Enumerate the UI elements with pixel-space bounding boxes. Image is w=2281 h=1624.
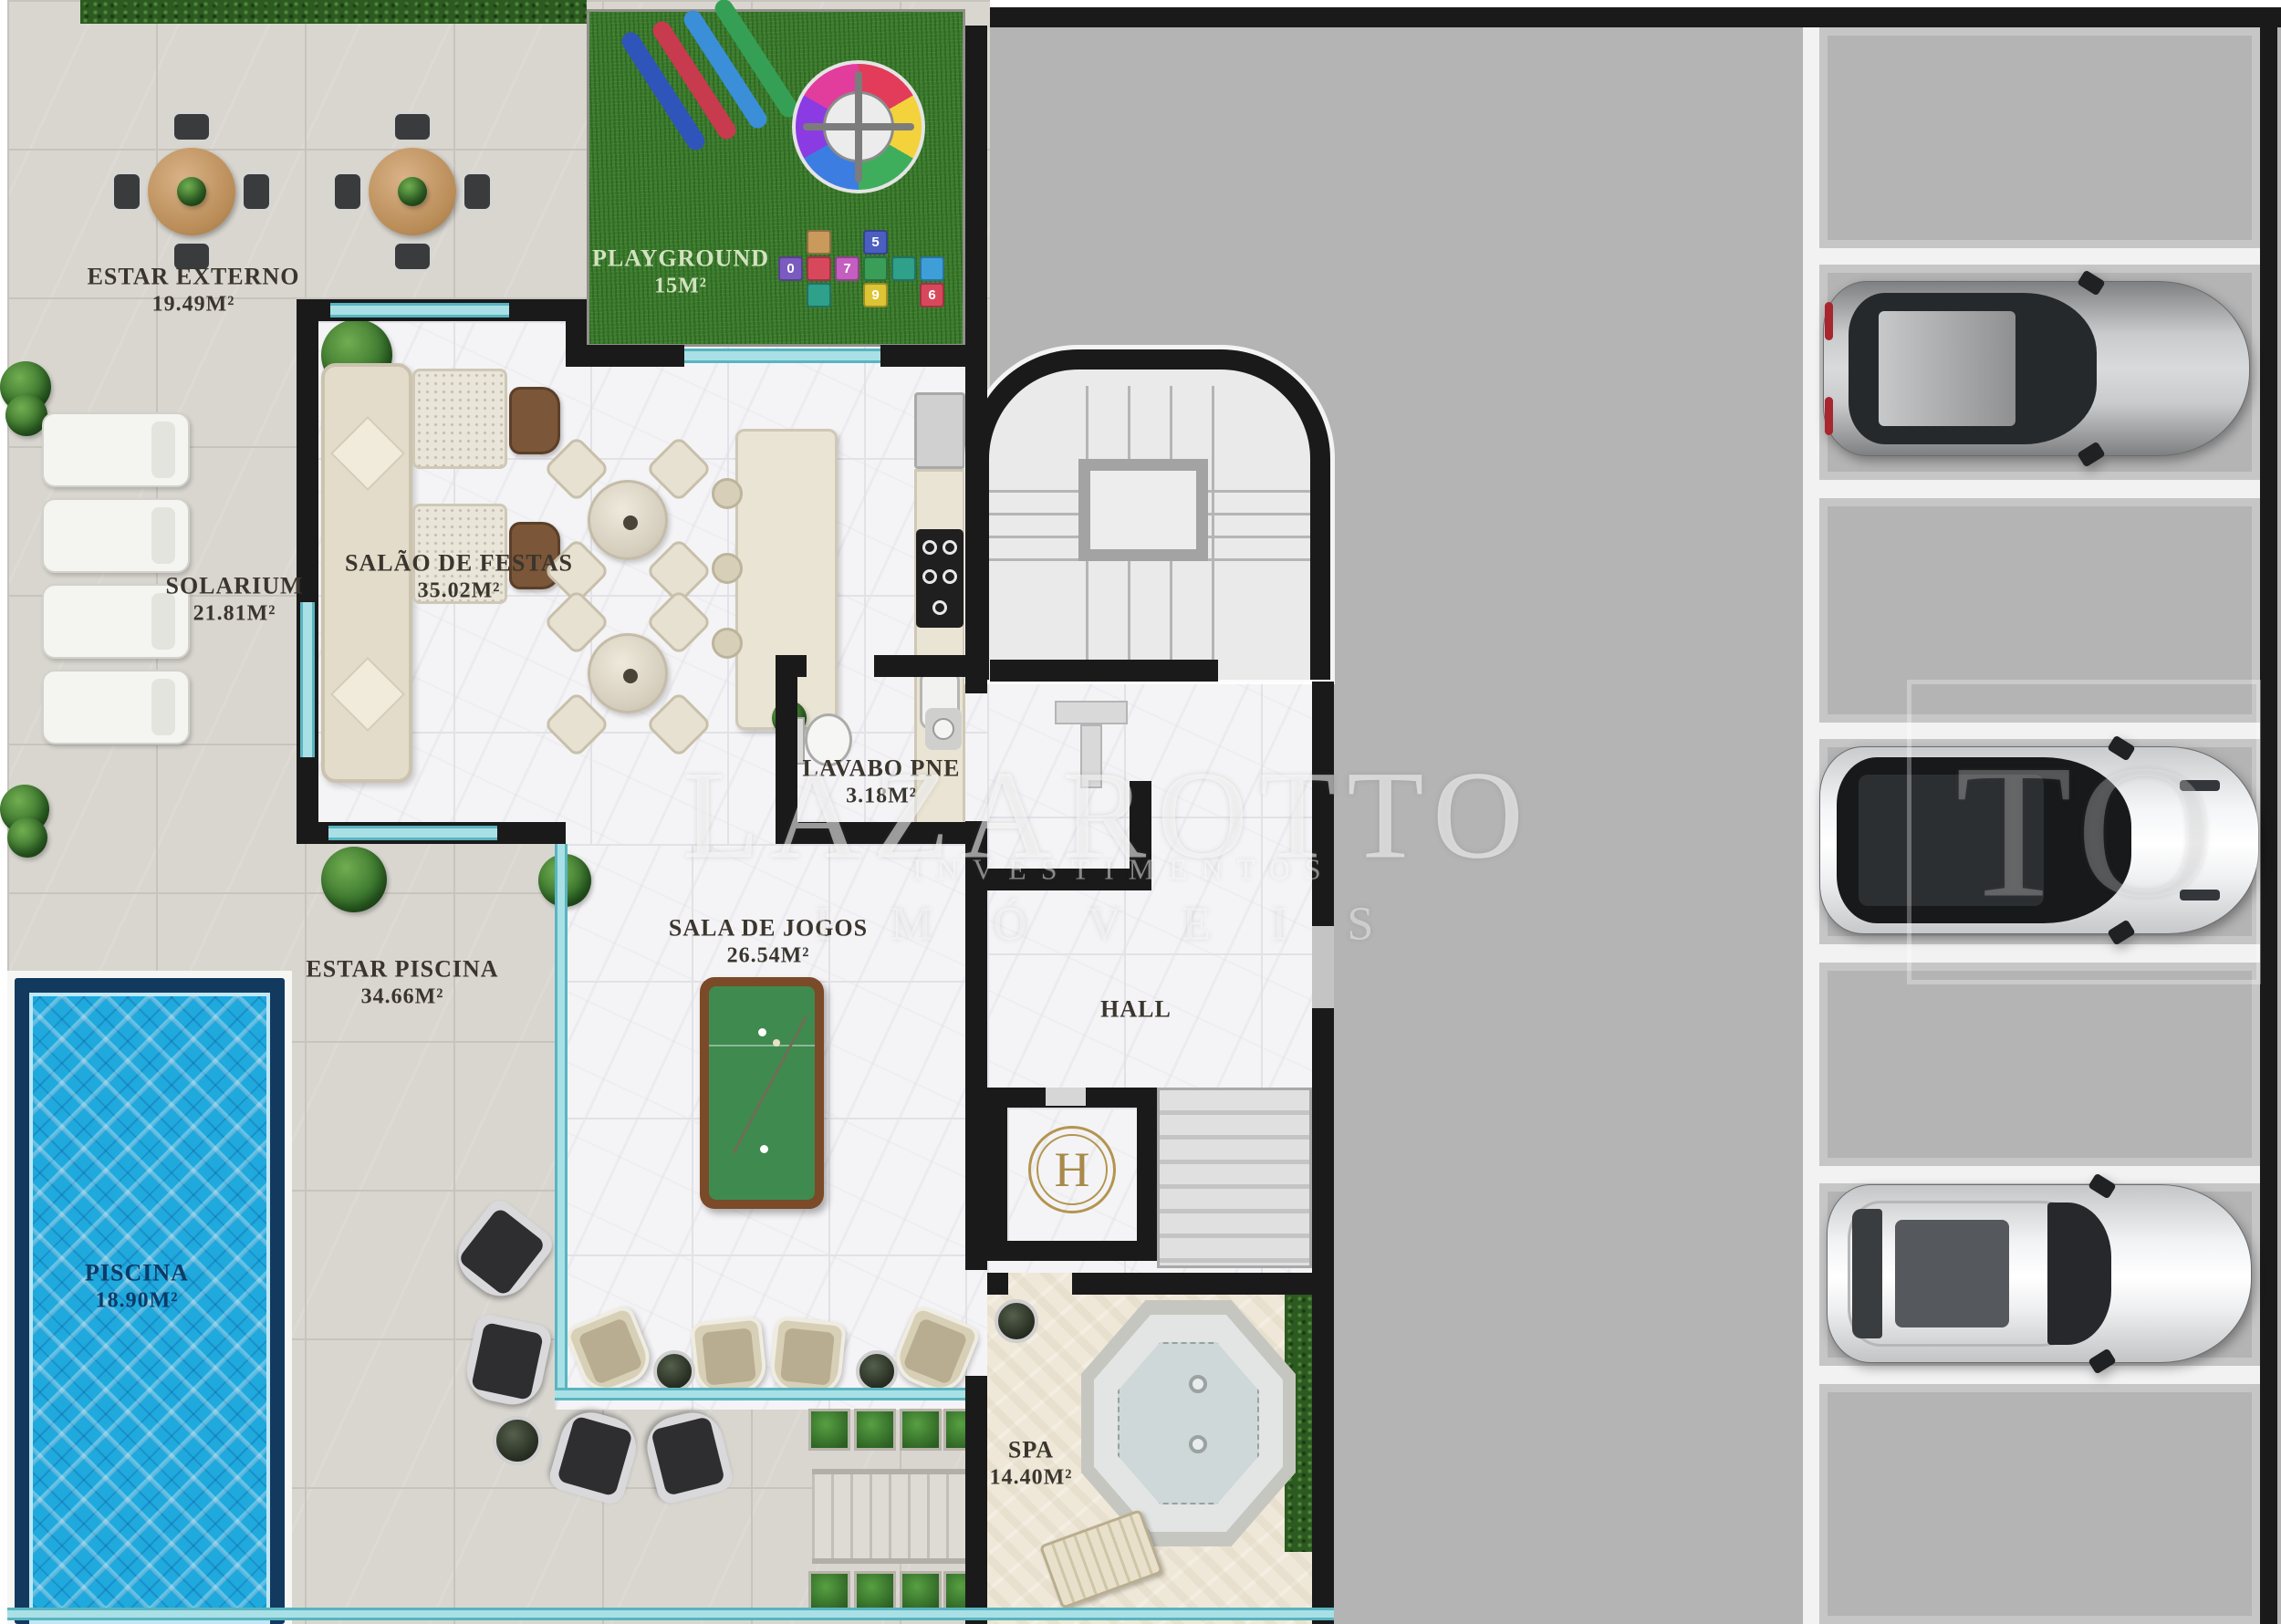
hopscotch-tile — [920, 256, 944, 281]
fridge — [914, 392, 965, 469]
hall-column — [1055, 701, 1128, 724]
bar-stool — [712, 478, 743, 509]
spa-jet — [1189, 1435, 1207, 1453]
armchair — [768, 1316, 847, 1398]
room-label-hall: HALL — [1100, 996, 1172, 1025]
room-name: SALÃO DE FESTAS — [345, 550, 573, 578]
round-table — [588, 480, 668, 560]
hall-column — [1080, 724, 1102, 788]
sun-lounger — [42, 498, 190, 573]
landing-platform — [1078, 459, 1208, 561]
hopscotch-tile — [807, 230, 831, 255]
chair — [172, 111, 212, 142]
wall-segment — [1312, 682, 1334, 926]
chair — [111, 172, 142, 212]
spinner-bar — [855, 71, 862, 182]
shrub — [900, 1409, 942, 1451]
ball — [760, 1145, 768, 1153]
side-table-round — [856, 1350, 898, 1392]
burner — [922, 540, 937, 555]
armchair-brown — [509, 387, 560, 454]
lane-line — [1803, 27, 1819, 1624]
room-name: LAVABO PNE — [802, 755, 960, 784]
hopscotch-tile — [807, 256, 831, 281]
bush — [321, 847, 387, 912]
hopscotch-tile: 7 — [835, 256, 859, 281]
ball — [773, 1039, 780, 1046]
hopscotch-tile: 9 — [863, 283, 888, 307]
room-name: ESTAR PISCINA — [306, 956, 498, 984]
wall-segment — [965, 1376, 987, 1624]
room-area: 35.02M² — [345, 578, 573, 603]
hopscotch-tile: 6 — [920, 283, 944, 307]
room-label-spa: SPA 14.40M² — [990, 1437, 1073, 1491]
bush — [7, 817, 47, 858]
room-label-salao-de-festas: SALÃO DE FESTAS 35.02M² — [345, 550, 573, 604]
burner — [922, 569, 937, 584]
chair — [392, 241, 432, 272]
car-windshield — [2047, 1202, 2111, 1346]
sink — [925, 708, 962, 750]
room-label-lavabo-pne: LAVABO PNE 3.18M² — [802, 755, 960, 809]
window-glass — [684, 349, 880, 363]
floor-plan: 5 0 7 9 6 — [0, 0, 2281, 1624]
hopscotch-tile: 5 — [863, 230, 888, 255]
wall-segment — [1312, 1273, 1334, 1624]
room-area: 19.49M² — [88, 291, 300, 317]
burner — [943, 569, 957, 584]
watermark-logo-box: TO — [1907, 680, 2261, 984]
ball — [758, 1028, 766, 1036]
spa-planter — [995, 1299, 1038, 1343]
room-name: ESTAR EXTERNO — [88, 264, 300, 292]
chair — [241, 172, 272, 212]
centerpiece — [623, 669, 638, 683]
wall-segment — [776, 655, 797, 844]
centerpiece — [623, 515, 638, 530]
pool-felt — [709, 986, 815, 1200]
wall-segment — [1072, 1273, 1334, 1295]
room-area: 18.90M² — [85, 1287, 189, 1313]
spa-tub — [1081, 1300, 1296, 1546]
spot-divider — [1819, 480, 2260, 498]
sofa-pillow — [330, 416, 405, 491]
car-taillight — [1825, 302, 1833, 340]
burner — [943, 540, 957, 555]
room-area: 3.18M² — [802, 783, 960, 808]
garage-door-opening — [1312, 926, 1334, 1008]
cue-stick — [733, 1015, 807, 1154]
sofa-pillow — [330, 657, 405, 732]
wall-segment — [965, 26, 987, 367]
wall-segment — [776, 822, 965, 844]
chair — [392, 111, 432, 142]
burner — [932, 600, 947, 615]
elevator-badge: H — [1028, 1126, 1116, 1213]
hopscotch-tile — [891, 256, 916, 281]
wall-segment — [1312, 1008, 1334, 1273]
car-sunroof — [1879, 311, 2015, 427]
entry-portico — [969, 349, 1330, 680]
spot-divider — [1819, 248, 2260, 265]
parking-spot — [1819, 963, 2260, 1166]
wall-segment — [1130, 781, 1151, 890]
room-label-estar-externo: ESTAR EXTERNO 19.49M² — [88, 264, 300, 318]
car-silver-sedan — [1823, 281, 2250, 456]
spot-divider — [1819, 1166, 2260, 1183]
room-label-sala-de-jogos: SALA DE JOGOS 26.54M² — [669, 915, 868, 969]
bar-stool — [712, 553, 743, 584]
shrub — [854, 1409, 896, 1451]
room-name: SALA DE JOGOS — [669, 915, 868, 943]
room-label-solarium: SOLARIUM 21.81M² — [165, 573, 303, 627]
wall-segment — [874, 655, 965, 677]
glass-wall — [555, 1388, 987, 1400]
side-table — [412, 369, 507, 469]
room-area: 14.40M² — [990, 1464, 1073, 1490]
parking-spot — [1819, 27, 2260, 248]
room-label-estar-piscina: ESTAR PISCINA 34.66M² — [306, 956, 498, 1010]
room-name: SPA — [990, 1437, 1073, 1465]
window-glass — [328, 826, 497, 840]
bar-stool — [712, 628, 743, 659]
sun-lounger — [42, 670, 190, 744]
shrub — [808, 1409, 850, 1451]
chair — [462, 172, 493, 212]
wall-segment — [987, 869, 1151, 890]
garage-border-top — [990, 7, 2281, 27]
car-white-suv — [1827, 1184, 2252, 1363]
chair — [332, 172, 363, 212]
wall-segment — [566, 299, 587, 367]
basin — [932, 718, 954, 740]
armchair — [690, 1316, 768, 1398]
wall-segment — [990, 660, 1218, 682]
window-glass — [330, 303, 509, 318]
baulk-line — [709, 1045, 815, 1046]
glass-wall — [555, 844, 568, 1399]
glass-rail-bottom — [7, 1608, 1334, 1620]
spinner-wheel — [792, 60, 925, 193]
sun-lounger — [42, 412, 190, 487]
round-table — [588, 633, 668, 713]
room-name: SOLARIUM — [165, 573, 303, 601]
wall-segment — [297, 299, 318, 844]
elevator-monogram: H — [1031, 1141, 1113, 1198]
room-area: 21.81M² — [165, 600, 303, 626]
car-taillight — [1825, 397, 1833, 435]
room-name: HALL — [1100, 996, 1172, 1025]
elevator-shaft: H — [987, 1088, 1157, 1261]
side-table-round — [653, 1350, 695, 1392]
room-label-playground: PLAYGROUND 15M² — [592, 245, 769, 299]
pool-table — [700, 977, 824, 1209]
room-area: 15M² — [592, 273, 769, 298]
stove — [916, 529, 963, 628]
wall-segment — [587, 345, 684, 367]
room-label-piscina: PISCINA 18.90M² — [85, 1260, 189, 1314]
table-plant — [398, 177, 427, 206]
spa-jet — [1189, 1375, 1207, 1393]
room-name: PISCINA — [85, 1260, 189, 1288]
hopscotch-tile — [863, 256, 888, 281]
room-area: 26.54M² — [669, 942, 868, 968]
wall-segment — [965, 367, 987, 693]
hopscotch-tile — [807, 283, 831, 307]
wall-segment — [987, 1273, 1008, 1295]
deck — [812, 1469, 985, 1564]
wall-segment — [965, 821, 987, 1270]
elevator-door — [1046, 1088, 1086, 1106]
hopscotch-tile: 0 — [778, 256, 803, 281]
parking-spot — [1819, 1384, 2260, 1624]
planter — [493, 1416, 542, 1465]
spot-divider — [1819, 1366, 2260, 1384]
car-rear-window — [1852, 1209, 1882, 1338]
garage-border-right — [2260, 7, 2277, 1624]
car-sunroof — [1895, 1220, 2010, 1327]
table-plant — [177, 177, 206, 206]
room-area: 34.66M² — [306, 984, 498, 1009]
watermark-ghost-letters: TO — [1955, 723, 2222, 942]
stairs — [1157, 1088, 1312, 1268]
room-name: PLAYGROUND — [592, 245, 769, 274]
top-hedge — [80, 0, 587, 24]
